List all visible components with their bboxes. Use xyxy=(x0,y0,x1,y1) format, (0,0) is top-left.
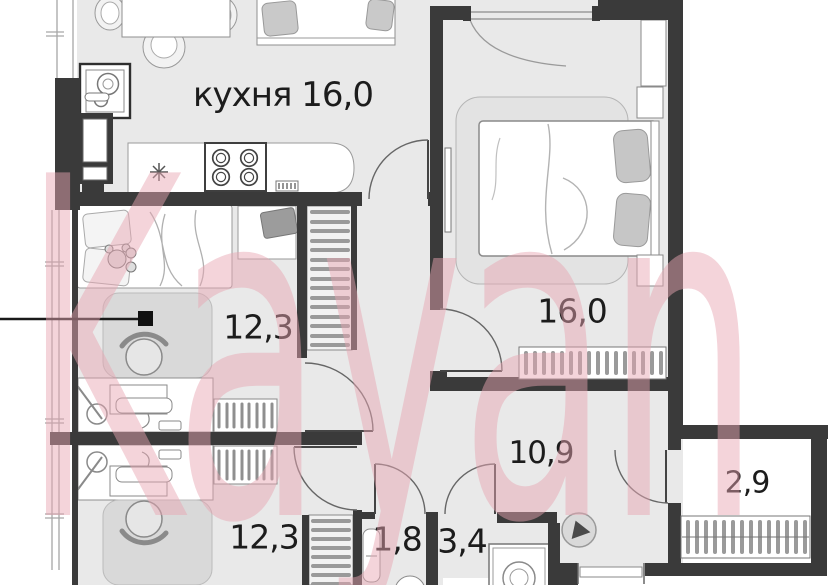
fridge xyxy=(77,113,113,196)
room-label-storage: 1,8 xyxy=(372,520,421,559)
room-label-bedroom: 16,0 xyxy=(537,292,606,331)
floor-plan-page: кухня 16,0 16,0 12,3 12,3 10,9 2,9 1,8 3… xyxy=(0,0,828,585)
room-label-hallway: 10,9 xyxy=(508,435,573,471)
desk-1 xyxy=(76,378,213,432)
cooktop xyxy=(205,143,266,191)
ventilation-icon xyxy=(562,513,596,547)
room-label-balcony: 2,9 xyxy=(725,466,770,501)
radiator-bedroom xyxy=(519,347,666,379)
dresser-1 xyxy=(214,399,277,432)
floor-plan-drawing xyxy=(0,0,828,585)
room-label-bottom-left: 12,3 xyxy=(229,518,298,557)
tv-table xyxy=(238,206,298,259)
room-label-kitchen: кухня 16,0 xyxy=(193,75,373,115)
washing-machine xyxy=(489,544,549,585)
balcony-glazing xyxy=(681,516,810,558)
children-bed xyxy=(77,205,232,288)
room-label-middle-left: 12,3 xyxy=(223,308,292,347)
wardrobe-room-bottom xyxy=(302,515,353,585)
desk-2 xyxy=(76,445,213,500)
hall-wardrobe xyxy=(307,203,357,350)
room-label-bathroom: 3,4 xyxy=(437,522,486,561)
double-bed xyxy=(479,121,659,256)
dresser-2 xyxy=(214,446,277,484)
kitchen-sink xyxy=(80,64,130,118)
sofa xyxy=(257,0,395,45)
wall-mirror xyxy=(445,148,451,232)
